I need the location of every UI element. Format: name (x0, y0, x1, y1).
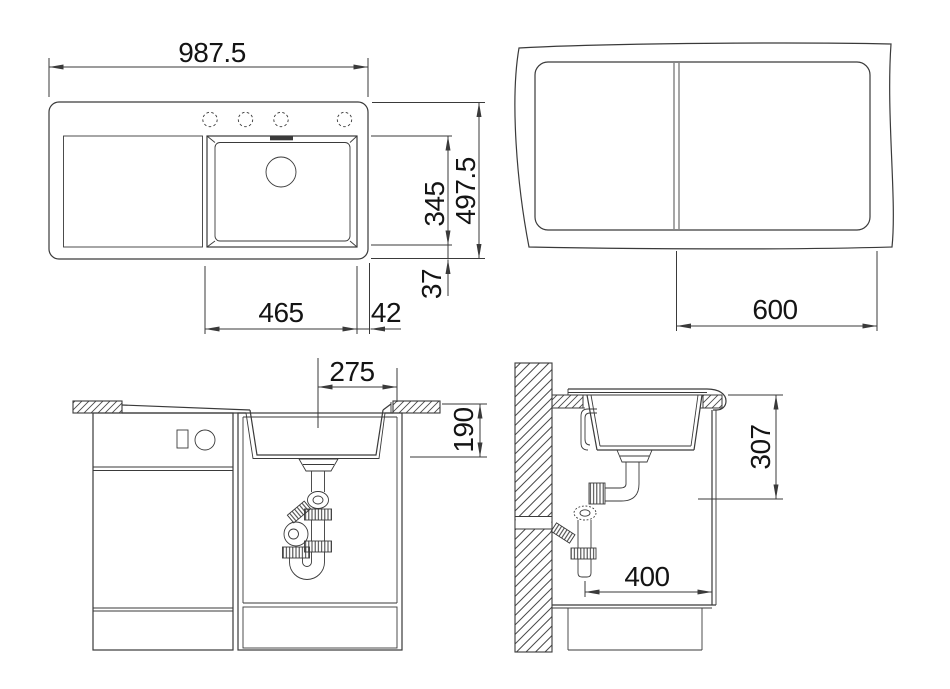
tap-holes (203, 112, 352, 126)
knurled-nut-icon (589, 483, 605, 504)
valve-wheel-icon (574, 506, 596, 520)
drain-plumbing-side (551, 450, 652, 577)
valve-body-icon (284, 522, 308, 546)
sink-footprint (535, 62, 870, 230)
wall-pipe-sleeve (515, 517, 552, 530)
left-cabinet (93, 413, 233, 650)
drain-hole-icon (266, 157, 296, 187)
worktop-plan-view: 600 (515, 43, 893, 331)
tap-hole-icon (337, 112, 351, 126)
worktop-outline (515, 43, 893, 249)
dim-bowl-length-label: 345 (419, 181, 450, 226)
bowl-outer-wall (246, 413, 385, 459)
bowl-section-side (581, 395, 702, 450)
dim-min-cabinet-depth: 400 (585, 561, 712, 597)
appliance-knob-icon (195, 430, 215, 450)
dim-overall-depth-label: 497.5 (450, 157, 481, 225)
dim-drain-center-offset: 275 (318, 356, 397, 402)
wall-section (515, 363, 552, 652)
dim-bowl-to-edge-label: 37 (416, 269, 447, 299)
dim-overall-width: 987.5 (49, 37, 368, 97)
side-section-view: 307 400 (515, 363, 783, 652)
drain-flange (299, 459, 338, 471)
dim-bowl-depth-label: 190 (448, 407, 479, 452)
tap-hole-icon (274, 112, 288, 126)
bowl (207, 136, 357, 247)
elbow-pipe (605, 484, 639, 501)
sink-profile (122, 401, 393, 459)
plan-view: 987.5 345 497.5 37 465 (49, 37, 485, 334)
knurled-nut-icon (283, 547, 310, 558)
dim-right-edge-offset-label: 42 (371, 297, 401, 328)
drawing-sheet: 987.5 345 497.5 37 465 (0, 0, 950, 689)
sink-outline (49, 102, 368, 259)
dim-overall-width-label: 987.5 (178, 37, 246, 68)
pipe-end (578, 559, 591, 577)
technical-drawing: 987.5 345 497.5 37 465 (0, 0, 950, 689)
dim-min-cabinet-width-label: 600 (752, 294, 797, 325)
worktop-section (73, 401, 440, 413)
tap-hole-icon (238, 112, 252, 126)
dim-bowl-to-edge: 37 (416, 245, 448, 299)
dim-worktop-to-clearance: 307 (698, 395, 783, 499)
dim-bowl-length: 345 (371, 136, 452, 245)
tap-hole-icon (203, 112, 217, 126)
u-bend (290, 562, 325, 580)
dim-min-cabinet-width: 600 (677, 251, 878, 331)
slip-nut-icon (308, 492, 329, 509)
dim-right-edge-offset: 42 (357, 297, 401, 329)
appliance-button-icon (177, 430, 188, 448)
drainboard (64, 136, 203, 247)
wall-connector-icon (551, 523, 575, 543)
siphon-trap (283, 459, 339, 580)
dim-worktop-to-clearance-label: 307 (745, 424, 776, 469)
dim-bowl-width: 465 (205, 263, 370, 334)
dim-min-cabinet-depth-label: 400 (624, 561, 669, 592)
overflow-slot (270, 137, 293, 141)
dim-bowl-width-label: 465 (258, 297, 303, 328)
knurled-nut-icon (571, 548, 596, 559)
dim-drain-center-offset-label: 275 (329, 356, 374, 387)
front-section-view: 275 190 (73, 356, 487, 650)
dim-overall-depth: 497.5 (371, 103, 485, 259)
